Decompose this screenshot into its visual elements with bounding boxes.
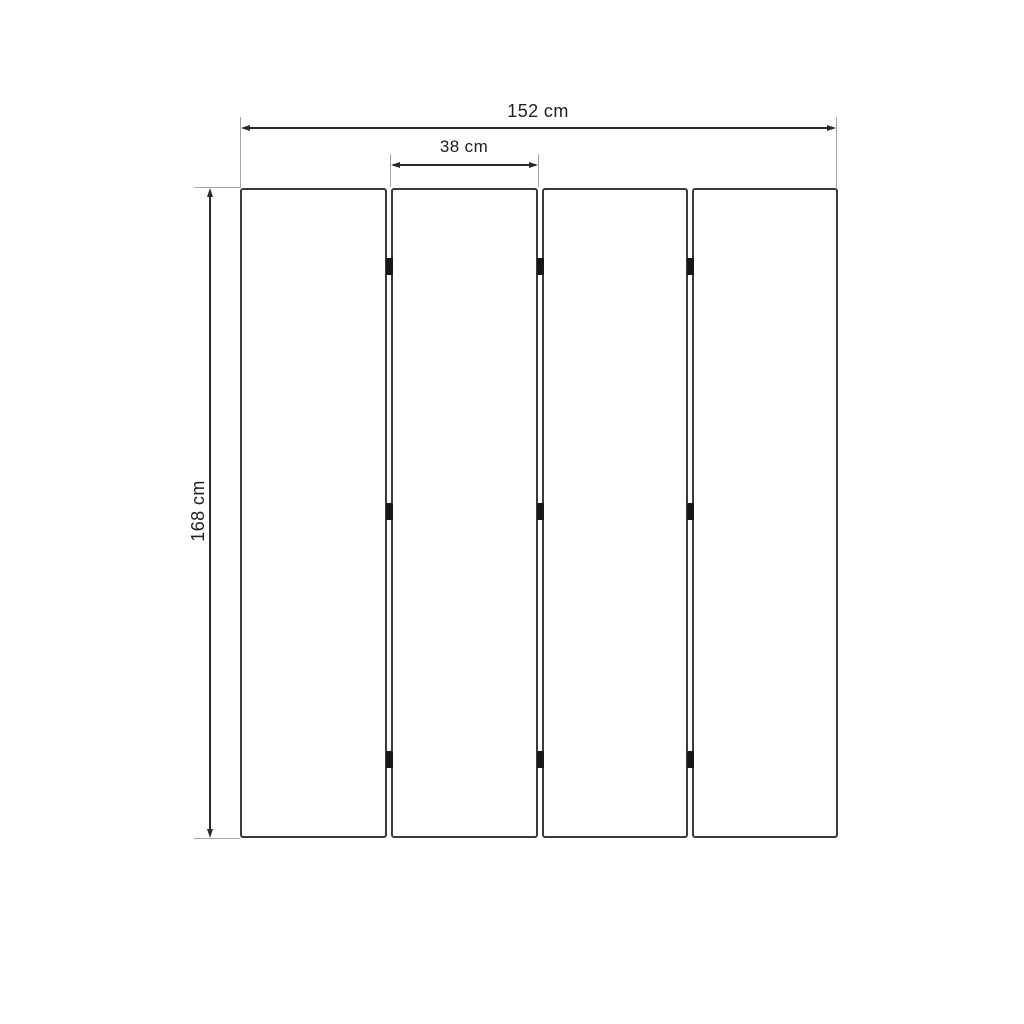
dimension-line xyxy=(393,164,536,166)
hinge-icon xyxy=(386,258,393,275)
arrowhead-down-icon xyxy=(207,829,213,838)
extension-line xyxy=(836,117,837,188)
arrowhead-right-icon xyxy=(827,125,836,131)
hinge-icon xyxy=(537,751,544,768)
hinge-icon xyxy=(687,503,694,520)
extension-line xyxy=(538,154,539,187)
panel-3 xyxy=(542,188,688,838)
height-label: 168 cm xyxy=(187,461,209,561)
panel-1 xyxy=(240,188,387,838)
dimension-line xyxy=(209,191,211,831)
extension-line xyxy=(194,838,240,839)
arrowhead-up-icon xyxy=(207,188,213,197)
hinge-icon xyxy=(537,503,544,520)
hinge-icon xyxy=(687,258,694,275)
dimension-diagram: 152 cm 38 cm 168 cm xyxy=(0,0,1024,1024)
panel-4 xyxy=(692,188,838,838)
arrowhead-left-icon xyxy=(241,125,250,131)
panel-width-label: 38 cm xyxy=(389,136,539,158)
extension-line xyxy=(194,187,240,188)
hinge-icon xyxy=(687,751,694,768)
hinge-icon xyxy=(537,258,544,275)
hinge-icon xyxy=(386,751,393,768)
total-width-label: 152 cm xyxy=(438,100,638,122)
arrowhead-right-icon xyxy=(529,162,538,168)
dimension-line xyxy=(243,127,834,129)
extension-line xyxy=(390,154,391,187)
panel-2 xyxy=(391,188,538,838)
hinge-icon xyxy=(386,503,393,520)
arrowhead-left-icon xyxy=(391,162,400,168)
